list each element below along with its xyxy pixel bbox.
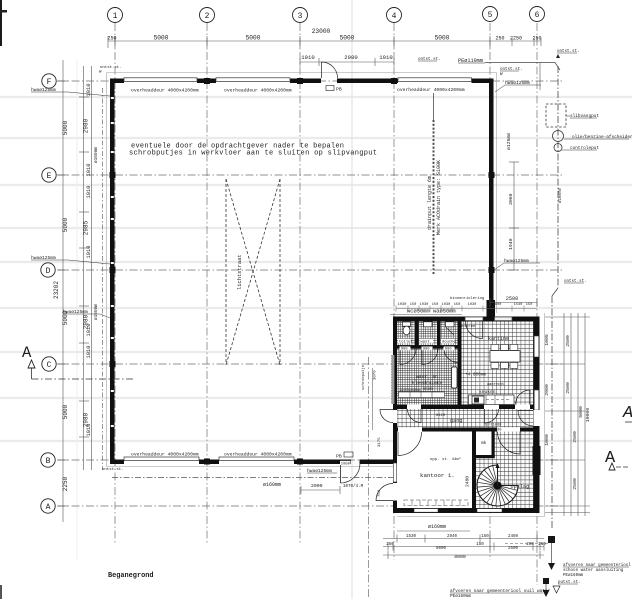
svg-text:2500: 2500	[572, 478, 578, 490]
svg-text:opslag: opslag	[511, 484, 530, 490]
svg-text:2480: 2480	[465, 476, 471, 487]
svg-text:2940: 2940	[447, 535, 458, 539]
svg-text:1070/4.M: 1070/4.M	[343, 484, 364, 489]
svg-text:750: 750	[378, 489, 382, 497]
svg-text:ontst.st.: ontst.st.	[500, 68, 523, 72]
svg-text:1940: 1940	[508, 238, 514, 250]
svg-text:6: 6	[535, 11, 540, 20]
svg-text:5000: 5000	[340, 35, 355, 42]
svg-text:overheaddeur 4000x4200mm: overheaddeur 4000x4200mm	[131, 88, 199, 94]
svg-text:aanrecht: aanrecht	[487, 382, 504, 387]
svg-text:5000: 5000	[62, 404, 69, 419]
svg-text:900: 900	[401, 348, 407, 352]
svg-text:5000: 5000	[435, 35, 450, 42]
svg-text:2: 2	[205, 12, 210, 21]
svg-text:2980: 2980	[83, 118, 90, 133]
svg-text:5000: 5000	[578, 406, 584, 418]
svg-text:1: 1	[113, 12, 118, 21]
svg-text:2000: 2000	[311, 483, 323, 489]
svg-text:1030: 1030	[398, 303, 407, 307]
svg-text:overheaddeur 4000x4200mm: overheaddeur 4000x4200mm	[397, 87, 465, 93]
svg-text:5000: 5000	[62, 217, 69, 232]
svg-text:gang: gang	[450, 418, 462, 424]
svg-text:2500: 2500	[565, 382, 571, 394]
svg-text:wasr. en: wasr. en	[416, 375, 438, 380]
svg-text:150: 150	[432, 303, 438, 307]
svg-text:1010: 1010	[86, 324, 92, 337]
svg-text:ø160mm: ø160mm	[263, 482, 281, 488]
svg-text:1030: 1030	[420, 303, 429, 307]
svg-text:10000: 10000	[585, 408, 591, 423]
svg-text:ontst.st.: ontst.st.	[100, 66, 122, 70]
svg-text:mk: mk	[481, 441, 487, 446]
svg-text:150: 150	[476, 543, 484, 547]
svg-text:+4.600mm: +4.600mm	[465, 373, 486, 378]
svg-text:A: A	[622, 404, 632, 423]
svg-text:2500: 2500	[572, 431, 578, 443]
svg-text:3070: 3070	[374, 370, 378, 380]
svg-text:5: 5	[488, 11, 493, 20]
svg-text:23202: 23202	[53, 281, 60, 299]
svg-text:1010: 1010	[86, 186, 92, 199]
svg-text:lichtstraat: lichtstraat	[237, 254, 243, 290]
svg-text:2980: 2980	[344, 54, 358, 61]
svg-text:1010: 1010	[86, 424, 92, 437]
svg-text:1010: 1010	[86, 164, 92, 177]
svg-text:kantoor 1.: kantoor 1.	[420, 472, 455, 479]
svg-text:overheaddeur 4000x4200mm: overheaddeur 4000x4200mm	[131, 452, 199, 458]
svg-text:ø160mm: ø160mm	[428, 524, 446, 530]
svg-text:schrobputjes in werkvloer aan: schrobputjes in werkvloer aan te sluiten…	[129, 150, 377, 158]
svg-text:PB: PB	[336, 454, 342, 460]
svg-text:ø160mm: ø160mm	[93, 147, 99, 164]
svg-text:1030: 1030	[468, 303, 477, 307]
svg-text:kantine: kantine	[488, 336, 509, 342]
svg-text:8000: 8000	[454, 554, 466, 560]
svg-text:4500: 4500	[423, 388, 433, 392]
svg-text:2500: 2500	[508, 547, 519, 551]
svg-text:1900x450mm: 1900x450mm	[399, 389, 421, 393]
svg-text:250: 250	[107, 36, 116, 42]
svg-text:1010: 1010	[86, 346, 92, 359]
svg-text:toilet: toilet	[399, 340, 413, 345]
svg-text:250: 250	[386, 543, 394, 547]
svg-text:1050: 1050	[341, 462, 351, 466]
svg-text:1010: 1010	[301, 54, 315, 61]
svg-text:150: 150	[454, 303, 460, 307]
svg-text:overheaddeur 4000x4200mm: overheaddeur 4000x4200mm	[224, 452, 292, 458]
svg-text:op=t1060: op=t1060	[484, 424, 501, 428]
svg-text:schoon water aansluiting: schoon water aansluiting	[563, 568, 624, 573]
svg-text:900: 900	[445, 348, 451, 352]
svg-text:4: 4	[392, 12, 397, 21]
svg-text:entree: entree	[461, 324, 476, 329]
svg-text:2250: 2250	[62, 476, 69, 491]
svg-text:2500: 2500	[506, 296, 518, 302]
svg-text:3175: 3175	[378, 437, 382, 447]
svg-text:150: 150	[526, 303, 532, 307]
svg-text:1530: 1530	[406, 535, 417, 539]
svg-text:D: D	[46, 267, 51, 276]
svg-text:schrobputje: schrobputje	[361, 364, 366, 390]
svg-text:ontst.st.: ontst.st.	[102, 468, 124, 472]
svg-text:1540: 1540	[514, 303, 523, 307]
svg-text:overheaddeur 4000x4200mm: overheaddeur 4000x4200mm	[224, 88, 292, 94]
svg-text:250: 250	[532, 36, 541, 42]
svg-text:binnenriolering: binnenriolering	[450, 296, 484, 301]
svg-text:keuken: keuken	[479, 389, 496, 395]
svg-text:E: E	[47, 172, 52, 181]
svg-text:wast.: wast.	[421, 341, 432, 345]
svg-text:2000: 2000	[544, 384, 550, 396]
svg-text:douche: douche	[442, 340, 456, 345]
svg-text:2460: 2460	[508, 535, 519, 539]
svg-text:ontst.st.: ontst.st.	[557, 50, 580, 54]
svg-text:5000: 5000	[246, 35, 261, 42]
svg-text:1000: 1000	[544, 434, 550, 446]
svg-text:Merk ACOdrain type: S100K: Merk ACOdrain type: S100K	[436, 160, 442, 235]
svg-text:1005: 1005	[544, 334, 550, 346]
svg-text:ø160mm: ø160mm	[93, 304, 99, 321]
svg-text:2250: 2250	[510, 36, 522, 42]
svg-text:3060: 3060	[508, 193, 514, 205]
svg-text:1010: 1010	[86, 246, 92, 259]
svg-text:1030: 1030	[442, 303, 451, 307]
svg-text:1010: 1010	[379, 54, 393, 61]
svg-text:23000: 23000	[312, 28, 331, 35]
svg-text:PEø160mm: PEø160mm	[563, 574, 584, 578]
svg-text:PB: PB	[336, 87, 342, 93]
svg-text:vrij=2060: vrij=2060	[482, 428, 501, 433]
svg-text:ø160mm: ø160mm	[559, 187, 563, 203]
svg-text:5000: 5000	[62, 120, 69, 135]
svg-text:3: 3	[298, 12, 303, 21]
svg-text:2500: 2500	[565, 335, 571, 347]
svg-text:putst.st.: putst.st.	[558, 581, 581, 585]
svg-text:5000: 5000	[436, 547, 447, 551]
svg-text:3800: 3800	[493, 303, 502, 307]
svg-text:150: 150	[481, 535, 489, 539]
svg-text:A: A	[605, 449, 616, 468]
svg-text:ontst.st.: ontst.st.	[418, 58, 441, 62]
svg-text:kleedruimte: kleedruimte	[412, 380, 443, 386]
svg-text:drainput lengte 6m: drainput lengte 6m	[427, 176, 433, 230]
svg-text:F: F	[47, 78, 52, 87]
svg-text:250: 250	[495, 36, 504, 42]
svg-text:5000: 5000	[154, 35, 169, 42]
svg-text:A: A	[22, 344, 32, 362]
svg-text:ø125mm: ø125mm	[506, 133, 512, 150]
svg-text:waø50mm: waø50mm	[433, 309, 456, 315]
svg-text:B: B	[46, 457, 51, 466]
svg-text:2985: 2985	[83, 220, 90, 235]
svg-text:A: A	[46, 503, 51, 512]
svg-text:PEø160mm: PEø160mm	[450, 594, 471, 599]
svg-text:900: 900	[423, 348, 429, 352]
svg-text:8410: 8410	[436, 414, 446, 418]
svg-text:1010: 1010	[86, 84, 92, 97]
svg-text:Beganegrond: Beganegrond	[108, 572, 154, 580]
svg-text:150: 150	[410, 303, 416, 307]
svg-text:C: C	[47, 361, 52, 370]
svg-text:ontst.st.: ontst.st.	[564, 280, 587, 284]
svg-text:wcø50mm: wcø50mm	[407, 309, 430, 315]
